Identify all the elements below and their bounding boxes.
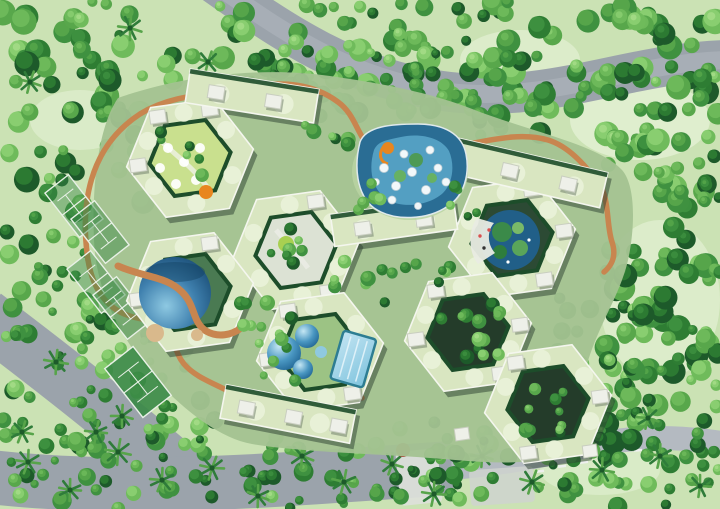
tree bbox=[472, 314, 487, 329]
tree bbox=[320, 46, 338, 64]
tree bbox=[80, 331, 94, 345]
tree bbox=[473, 486, 489, 502]
tree bbox=[338, 255, 352, 269]
lagoon-island bbox=[493, 245, 507, 259]
tree bbox=[640, 476, 657, 493]
tree bbox=[671, 162, 684, 175]
tree bbox=[380, 297, 390, 307]
pool-island bbox=[409, 153, 423, 167]
tree bbox=[663, 217, 685, 239]
tree bbox=[692, 427, 704, 439]
roof-unit bbox=[535, 272, 553, 287]
tree bbox=[692, 90, 709, 107]
roof-unit bbox=[343, 386, 361, 401]
tree bbox=[248, 53, 266, 71]
tree bbox=[10, 330, 21, 341]
tree bbox=[75, 356, 89, 370]
tree bbox=[282, 251, 292, 261]
roof-garden-circle bbox=[533, 350, 551, 368]
roof-garden-circle bbox=[539, 201, 557, 219]
tree bbox=[682, 102, 696, 116]
tree bbox=[632, 303, 654, 325]
pool-island bbox=[394, 170, 406, 182]
tree bbox=[646, 129, 670, 153]
lagoon-island bbox=[512, 240, 528, 256]
tree bbox=[570, 59, 583, 72]
tree bbox=[425, 66, 440, 81]
tree bbox=[393, 28, 406, 41]
roof-unit bbox=[284, 409, 302, 425]
tree bbox=[240, 298, 251, 309]
tree bbox=[691, 360, 712, 381]
roof-garden-circle bbox=[217, 255, 235, 273]
tree bbox=[330, 275, 339, 284]
tree bbox=[555, 425, 564, 434]
tree bbox=[464, 212, 473, 221]
umbrella bbox=[195, 143, 205, 153]
pool-deck-circle bbox=[191, 329, 203, 341]
tree bbox=[461, 36, 471, 46]
tree bbox=[393, 489, 409, 505]
deck-table bbox=[482, 246, 485, 249]
deck-table bbox=[478, 234, 481, 237]
tree bbox=[429, 467, 447, 485]
tree bbox=[411, 258, 422, 269]
tree bbox=[58, 145, 68, 155]
tree bbox=[600, 84, 617, 101]
tree bbox=[294, 236, 303, 245]
tree bbox=[98, 388, 112, 402]
tree bbox=[329, 2, 339, 12]
tree bbox=[528, 16, 551, 39]
tree bbox=[394, 40, 411, 57]
tree bbox=[529, 383, 541, 395]
tree bbox=[449, 180, 461, 192]
tree bbox=[457, 312, 466, 321]
tree bbox=[101, 349, 115, 363]
tree bbox=[577, 10, 600, 33]
tree bbox=[54, 423, 66, 435]
tree bbox=[195, 168, 209, 182]
tree bbox=[452, 492, 467, 507]
tree bbox=[46, 229, 61, 244]
tree bbox=[436, 313, 447, 324]
pool-umbrella bbox=[426, 146, 434, 154]
tree bbox=[466, 52, 483, 69]
tree bbox=[137, 70, 148, 81]
tree bbox=[296, 245, 307, 256]
tree bbox=[301, 121, 310, 130]
tree bbox=[77, 67, 89, 79]
tree bbox=[215, 1, 226, 12]
roof-unit bbox=[237, 400, 255, 416]
tree bbox=[13, 488, 29, 504]
tree bbox=[616, 409, 628, 421]
tree bbox=[666, 75, 691, 100]
tree bbox=[658, 103, 677, 122]
roof-unit bbox=[511, 317, 529, 332]
tree bbox=[336, 493, 347, 504]
tree bbox=[643, 394, 656, 407]
tree bbox=[155, 126, 167, 138]
tree bbox=[267, 249, 276, 258]
roof-garden-circle bbox=[545, 246, 563, 264]
tree bbox=[550, 393, 562, 405]
tree bbox=[36, 291, 52, 307]
roof-garden-circle bbox=[217, 121, 235, 139]
tree bbox=[0, 144, 18, 162]
tree bbox=[615, 144, 634, 163]
roof-garden-circle bbox=[223, 166, 241, 184]
tree bbox=[367, 8, 378, 19]
roof-garden-circle bbox=[347, 315, 365, 333]
tree bbox=[277, 60, 290, 73]
roof-unit bbox=[207, 85, 225, 100]
tree bbox=[87, 443, 96, 452]
tree bbox=[255, 339, 264, 348]
tree bbox=[19, 234, 39, 254]
tree bbox=[699, 196, 710, 207]
tree bbox=[268, 356, 279, 367]
tree bbox=[178, 438, 191, 451]
roof-garden-circle bbox=[417, 306, 435, 324]
tree bbox=[21, 103, 38, 120]
roof-garden-circle bbox=[497, 378, 515, 396]
tree bbox=[653, 23, 675, 45]
tree bbox=[357, 197, 369, 209]
tree bbox=[337, 16, 352, 31]
roof-unit bbox=[591, 389, 609, 404]
tree bbox=[99, 475, 112, 488]
tree bbox=[284, 223, 297, 236]
tree bbox=[73, 41, 91, 59]
tree bbox=[344, 66, 355, 77]
tree bbox=[524, 424, 536, 436]
tree bbox=[288, 34, 304, 50]
tree bbox=[67, 236, 80, 249]
tree bbox=[684, 38, 700, 54]
tree bbox=[672, 352, 685, 365]
roof-unit bbox=[149, 109, 167, 124]
tree bbox=[14, 51, 39, 76]
roof-garden-circle bbox=[509, 274, 527, 292]
tree bbox=[696, 413, 712, 429]
tree bbox=[8, 473, 22, 487]
umbrella bbox=[155, 163, 165, 173]
tree bbox=[44, 173, 55, 184]
tree bbox=[627, 12, 646, 31]
pool-umbrella bbox=[442, 178, 450, 186]
tree bbox=[407, 466, 415, 474]
tree bbox=[622, 378, 632, 388]
tree bbox=[354, 1, 366, 13]
tree bbox=[194, 154, 204, 164]
pool-umbrella bbox=[388, 196, 396, 204]
site-plan-image bbox=[0, 0, 720, 509]
tree bbox=[185, 48, 201, 64]
tree bbox=[487, 472, 499, 484]
tree bbox=[620, 429, 642, 451]
tree bbox=[615, 87, 628, 100]
tree bbox=[360, 271, 375, 286]
tree bbox=[52, 280, 63, 291]
roof-unit bbox=[555, 223, 573, 238]
tree bbox=[205, 490, 218, 503]
roof-garden-circle bbox=[145, 177, 163, 195]
tree bbox=[7, 457, 16, 466]
tree bbox=[131, 460, 143, 472]
tree bbox=[387, 268, 398, 279]
tree bbox=[86, 315, 95, 324]
tree bbox=[628, 64, 645, 81]
tree bbox=[366, 48, 375, 57]
roof-garden-circle bbox=[575, 367, 593, 385]
tree bbox=[478, 349, 489, 360]
tree bbox=[679, 264, 699, 284]
tree bbox=[82, 408, 96, 422]
tree bbox=[488, 68, 507, 87]
tree bbox=[212, 46, 235, 69]
tree bbox=[34, 146, 47, 159]
tree bbox=[456, 13, 472, 29]
roof-unit bbox=[129, 158, 147, 173]
tree bbox=[77, 343, 88, 354]
tree bbox=[302, 45, 314, 57]
tree bbox=[275, 332, 289, 346]
lagoon-sparkle bbox=[506, 260, 509, 263]
tree bbox=[604, 354, 616, 366]
tree bbox=[328, 132, 336, 140]
tree bbox=[477, 10, 490, 23]
tree bbox=[24, 391, 36, 403]
tree bbox=[9, 75, 23, 89]
tree bbox=[237, 319, 250, 332]
tree bbox=[697, 459, 709, 471]
tree bbox=[620, 387, 642, 409]
tree bbox=[661, 331, 676, 346]
tree bbox=[651, 77, 661, 87]
site-plan-stage bbox=[0, 0, 720, 509]
tree bbox=[700, 179, 712, 191]
tree bbox=[445, 466, 464, 485]
tree bbox=[341, 137, 355, 151]
tree bbox=[576, 91, 587, 102]
tree bbox=[664, 483, 675, 494]
roof-unit bbox=[330, 418, 348, 434]
pool-umbrella bbox=[400, 150, 408, 158]
tree bbox=[7, 380, 25, 398]
tree bbox=[57, 266, 69, 278]
tree bbox=[708, 446, 720, 458]
tree bbox=[634, 103, 648, 117]
tree bbox=[159, 453, 168, 462]
tree bbox=[400, 262, 411, 273]
roof-garden-circle bbox=[175, 238, 193, 256]
tree bbox=[499, 50, 517, 68]
tree bbox=[376, 264, 387, 275]
tree bbox=[369, 486, 384, 501]
roof-garden-circle bbox=[453, 278, 471, 296]
tree bbox=[438, 266, 447, 275]
tree bbox=[366, 178, 377, 189]
roof-garden-circle bbox=[545, 440, 563, 458]
tree bbox=[696, 329, 716, 349]
tree bbox=[524, 99, 542, 117]
tree bbox=[185, 141, 195, 151]
tree bbox=[671, 132, 691, 152]
tree bbox=[472, 208, 481, 217]
tree bbox=[295, 496, 304, 505]
roof-garden-circle bbox=[465, 368, 483, 386]
roof-unit bbox=[582, 444, 598, 458]
roof-unit bbox=[407, 332, 425, 347]
roof-unit bbox=[507, 355, 525, 370]
sphere-pool bbox=[295, 324, 319, 348]
umbrella bbox=[171, 179, 181, 189]
lagoon-sparkle bbox=[527, 238, 530, 241]
tree bbox=[73, 12, 88, 27]
roof-garden-circle bbox=[503, 423, 521, 441]
tree bbox=[260, 295, 275, 310]
tree bbox=[313, 3, 328, 18]
tree bbox=[11, 9, 37, 35]
tree bbox=[37, 469, 49, 481]
tree bbox=[692, 69, 712, 89]
tree bbox=[69, 433, 85, 449]
roof-unit bbox=[354, 221, 372, 236]
tree bbox=[656, 366, 666, 376]
roof-unit bbox=[520, 445, 538, 460]
tree bbox=[634, 163, 653, 182]
tree bbox=[34, 262, 43, 271]
tree bbox=[380, 73, 393, 86]
tree bbox=[111, 34, 135, 58]
tree bbox=[196, 435, 204, 443]
tree bbox=[493, 310, 503, 320]
tree bbox=[626, 358, 642, 374]
play-feature bbox=[199, 185, 213, 199]
roof-unit bbox=[201, 236, 219, 251]
tree bbox=[233, 20, 255, 42]
deck-table bbox=[487, 228, 490, 231]
tree bbox=[183, 151, 191, 159]
tree bbox=[87, 385, 96, 394]
tree bbox=[503, 90, 518, 105]
tree bbox=[693, 157, 705, 169]
tree bbox=[3, 298, 23, 318]
tree bbox=[285, 311, 298, 324]
tree bbox=[39, 438, 55, 454]
tree bbox=[78, 468, 96, 486]
tree bbox=[374, 193, 386, 205]
tree bbox=[611, 451, 627, 467]
tree bbox=[12, 281, 32, 301]
tree bbox=[157, 55, 176, 74]
lagoon-island bbox=[512, 222, 524, 234]
tree bbox=[688, 325, 698, 335]
tree bbox=[492, 348, 505, 361]
tree bbox=[0, 245, 19, 265]
pool-umbrella bbox=[392, 182, 401, 191]
pool-deck-circle bbox=[146, 324, 164, 342]
tree bbox=[262, 449, 278, 465]
tree bbox=[239, 467, 249, 477]
tree bbox=[260, 371, 268, 379]
roof-garden-circle bbox=[281, 196, 299, 214]
tree bbox=[654, 286, 678, 310]
pool-umbrella bbox=[415, 203, 422, 210]
tree bbox=[99, 69, 122, 92]
tree bbox=[29, 211, 42, 224]
tree bbox=[431, 49, 440, 58]
lagoon-island bbox=[492, 222, 512, 242]
tree bbox=[189, 469, 203, 483]
tree bbox=[343, 40, 355, 52]
tree bbox=[389, 472, 402, 485]
tree bbox=[144, 424, 155, 435]
roof-garden-circle bbox=[245, 224, 263, 242]
tree bbox=[679, 450, 694, 465]
tree bbox=[460, 350, 475, 365]
pool-umbrella bbox=[422, 186, 431, 195]
tree bbox=[14, 167, 40, 193]
tree bbox=[531, 51, 542, 62]
pool-island bbox=[427, 173, 437, 183]
tree bbox=[91, 484, 102, 495]
tree bbox=[665, 60, 678, 73]
sphere-pool bbox=[315, 346, 327, 358]
tree bbox=[410, 63, 419, 72]
tree bbox=[383, 54, 395, 66]
pool-umbrella bbox=[434, 164, 442, 172]
tree bbox=[256, 322, 266, 332]
tree bbox=[63, 102, 79, 118]
tree bbox=[48, 307, 57, 316]
roof-unit bbox=[264, 94, 282, 109]
tree bbox=[51, 457, 59, 465]
tree bbox=[446, 201, 455, 210]
roof-unit bbox=[307, 194, 325, 209]
tree bbox=[43, 76, 60, 93]
tree bbox=[289, 374, 301, 386]
pool-umbrella bbox=[408, 168, 417, 177]
roof-garden-circle bbox=[305, 298, 323, 316]
tree bbox=[472, 332, 487, 347]
tree bbox=[670, 391, 691, 412]
tree bbox=[265, 469, 281, 485]
tree bbox=[451, 2, 465, 16]
tree bbox=[674, 185, 689, 200]
tree bbox=[654, 167, 665, 178]
umbrella bbox=[163, 143, 173, 153]
tree bbox=[616, 323, 636, 343]
roof-garden-circle bbox=[139, 132, 157, 150]
tree bbox=[555, 407, 563, 415]
tree bbox=[441, 46, 454, 59]
roof-unit bbox=[454, 427, 470, 441]
tree bbox=[69, 398, 78, 407]
roof-garden-circle bbox=[423, 351, 441, 369]
tree bbox=[524, 404, 533, 413]
tree bbox=[434, 277, 444, 287]
tree bbox=[126, 486, 141, 501]
roof-garden-circle bbox=[175, 104, 193, 122]
tree bbox=[0, 224, 14, 239]
tree bbox=[156, 413, 168, 425]
roof-garden-circle bbox=[581, 412, 599, 430]
pool-umbrella bbox=[380, 164, 389, 173]
tree bbox=[701, 130, 715, 144]
